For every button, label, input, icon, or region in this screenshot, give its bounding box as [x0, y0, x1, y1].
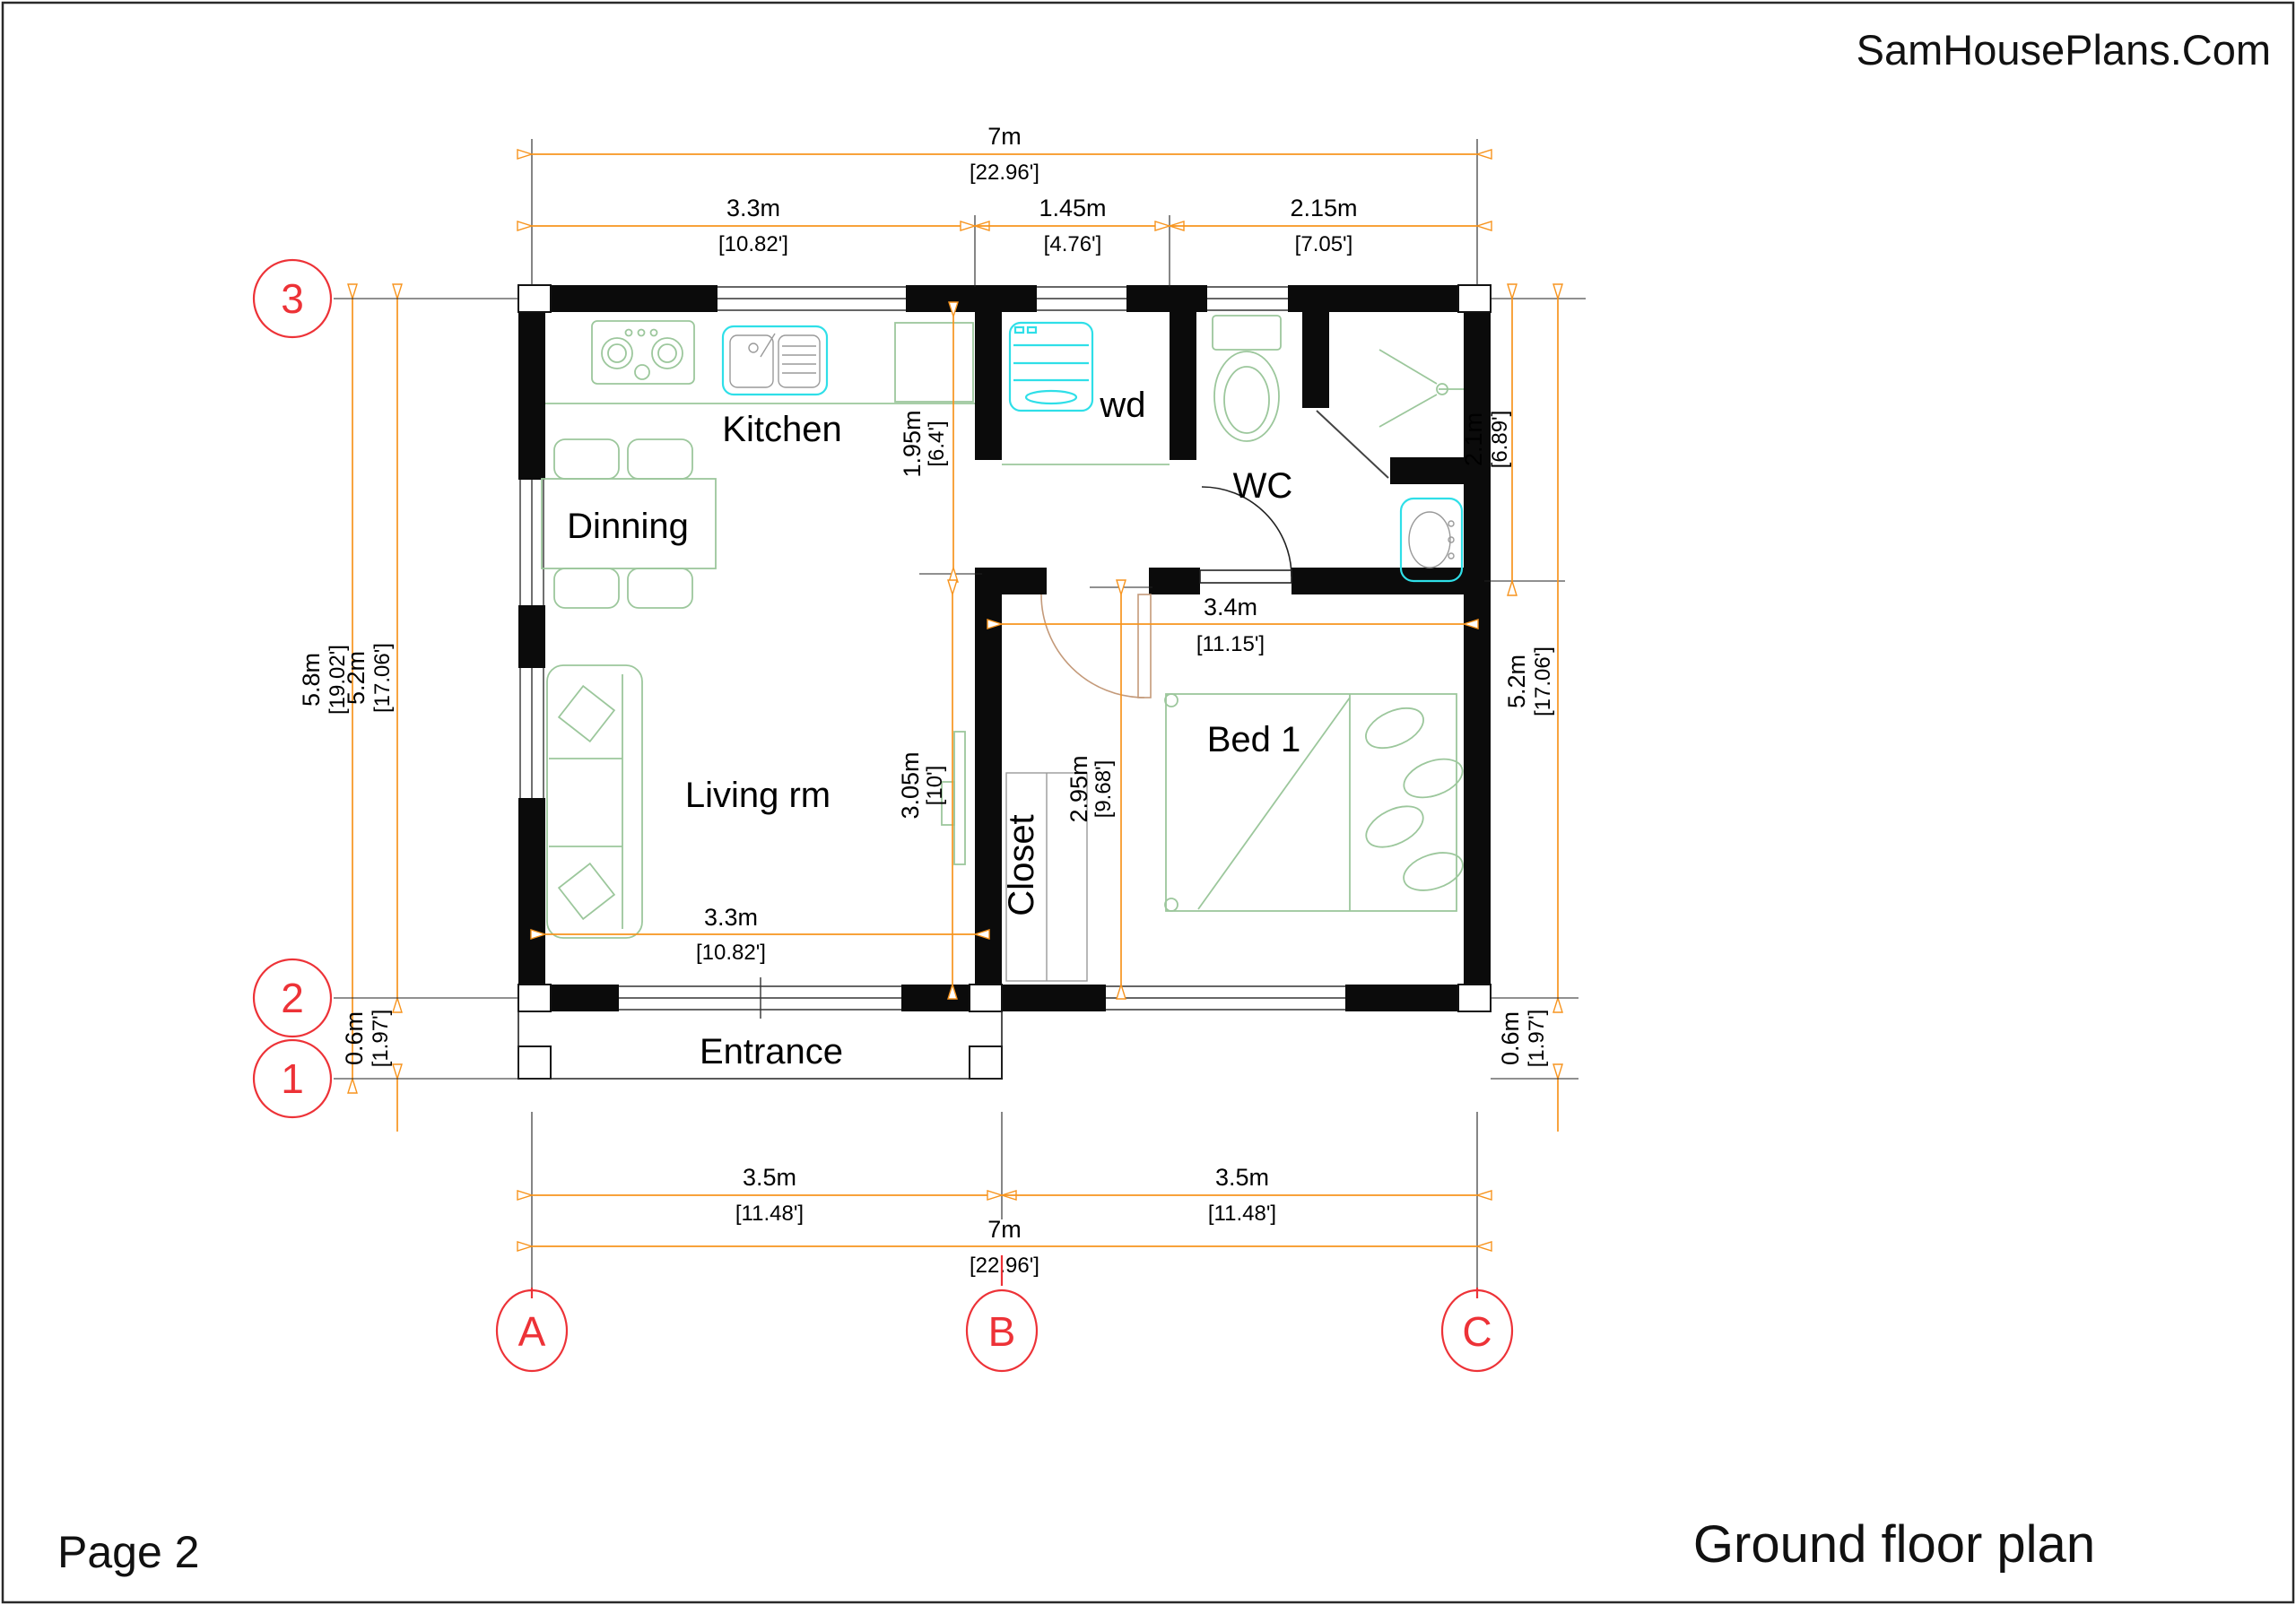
dim-top-wd-ft: [4.76'] — [1044, 232, 1102, 256]
dim-bottom-total-m: 7m — [987, 1216, 1022, 1243]
grid-row-3-label: 3 — [281, 275, 304, 322]
dim-top-wc-ft: [7.05'] — [1295, 232, 1353, 256]
dim-bottom-right-ft: [11.48'] — [1208, 1202, 1276, 1226]
grid-row-2-label: 2 — [281, 975, 304, 1021]
dim-living-depth-m: 3.05m — [897, 751, 924, 819]
bedroom-door — [1041, 594, 1151, 698]
toilet-icon — [1213, 316, 1281, 441]
dim-living-width-m: 3.3m — [704, 904, 758, 931]
dim-bed-depth-m: 2.95m — [1065, 755, 1092, 822]
dim-bed-width-m: 3.4m — [1204, 594, 1257, 620]
dim-top-total-m: 7m — [987, 123, 1022, 150]
dim-right-wc-ft: [6.89'] — [1488, 411, 1512, 469]
dim-left-inner-m: 5.2m — [343, 651, 370, 705]
dim-left-porch-ft: [1.97'] — [369, 1010, 393, 1068]
dim-living-width-ft: [10.82'] — [696, 941, 766, 965]
dim-bottom-left-m: 3.5m — [743, 1164, 796, 1191]
dim-bed-depth-ft: [9.68'] — [1091, 760, 1116, 819]
grid-col-c-label: C — [1462, 1308, 1492, 1355]
room-label-bed1: Bed 1 — [1207, 720, 1301, 759]
dim-right-inner-m: 5.2m — [1503, 655, 1530, 708]
dim-living-depth-ft: [10'] — [923, 766, 947, 806]
dim-left-inner-ft: [17.06'] — [370, 643, 395, 713]
sofa-icon — [547, 665, 642, 938]
dim-right-porch-m: 0.6m — [1497, 1011, 1524, 1065]
dim-kitchen-depth-m: 1.95m — [899, 410, 926, 477]
dim-top-kitchen-ft: [10.82'] — [718, 232, 788, 256]
room-label-living: Living rm — [685, 776, 831, 815]
dim-top-wc-m: 2.15m — [1290, 195, 1357, 221]
dim-right-wc-m: 2.1m — [1460, 412, 1487, 466]
shower-partition — [1317, 411, 1388, 478]
floor-plan-page: 7m [22.96'] 3.3m [10.82'] 1.45m [4.76'] … — [0, 0, 2296, 1605]
floor-plan-canvas: 7m [22.96'] 3.3m [10.82'] 1.45m [4.76'] … — [0, 0, 2296, 1605]
washer-icon — [1010, 323, 1092, 411]
page-border — [3, 3, 2293, 1602]
dim-right-porch-ft: [1.97'] — [1525, 1010, 1549, 1068]
shower-icon — [1379, 350, 1464, 427]
dim-bottom-right-m: 3.5m — [1215, 1164, 1269, 1191]
room-label-wc: WC — [1233, 466, 1293, 506]
dim-top-wd-m: 1.45m — [1039, 195, 1106, 221]
dim-bed-width-ft: [11.15'] — [1196, 632, 1265, 656]
stove-icon — [592, 321, 694, 384]
page-number: Page 2 — [57, 1527, 199, 1577]
grid-col-a-label: A — [518, 1308, 546, 1355]
dim-left-total-m: 5.8m — [298, 653, 325, 707]
dim-bottom-left-ft: [11.48'] — [735, 1202, 804, 1226]
plan-title: Ground floor plan — [1693, 1515, 2095, 1574]
room-label-kitchen: Kitchen — [722, 410, 841, 449]
room-label-closet: Closet — [1002, 814, 1041, 915]
kitchen-counter — [545, 323, 1170, 464]
dim-left-porch-m: 0.6m — [341, 1011, 368, 1065]
kitchen-sink-icon — [723, 326, 827, 395]
dim-top-kitchen-m: 3.3m — [726, 195, 780, 221]
room-labels: Kitchen Dinning Living rm Closet Bed 1 w… — [567, 386, 1300, 1071]
site-title: SamHousePlans.Com — [1857, 26, 2271, 74]
dim-bottom-total-ft: [22.96'] — [970, 1254, 1039, 1278]
dim-top-total-ft: [22.96'] — [970, 160, 1039, 185]
grid-row-1-label: 1 — [281, 1055, 304, 1102]
grid-col-b-label: B — [988, 1308, 1016, 1355]
dim-kitchen-depth-ft: [6.4'] — [925, 421, 949, 466]
room-label-wd: wd — [1099, 386, 1145, 425]
room-label-entrance: Entrance — [700, 1032, 843, 1071]
room-label-dinning: Dinning — [567, 507, 689, 546]
dim-right-inner-ft: [17.06'] — [1531, 646, 1555, 716]
